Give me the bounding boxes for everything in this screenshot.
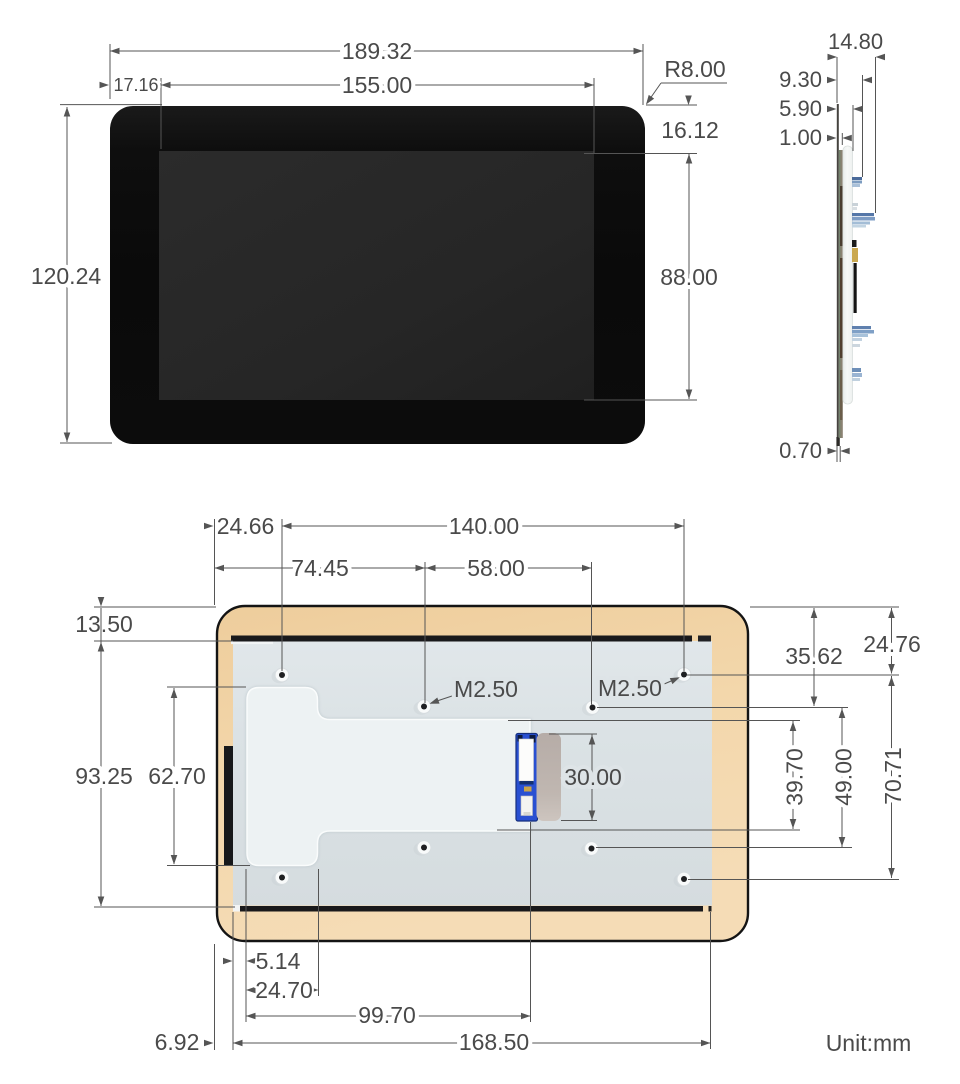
svg-text:16.12: 16.12	[661, 117, 719, 143]
svg-text:120.24: 120.24	[31, 263, 102, 289]
svg-text:35.62: 35.62	[785, 643, 843, 669]
svg-text:155.00: 155.00	[342, 72, 412, 98]
svg-text:Unit:mm: Unit:mm	[826, 1030, 912, 1056]
svg-text:189.32: 189.32	[342, 38, 412, 64]
svg-text:49.00: 49.00	[831, 748, 857, 806]
svg-text:0.70: 0.70	[779, 438, 822, 463]
svg-text:58.00: 58.00	[467, 555, 525, 581]
svg-text:62.70: 62.70	[148, 763, 206, 789]
svg-text:74.45: 74.45	[291, 555, 349, 581]
svg-text:5.90: 5.90	[779, 96, 822, 121]
svg-text:14.80: 14.80	[828, 29, 883, 54]
svg-text:99.70: 99.70	[358, 1002, 416, 1028]
svg-text:140.00: 140.00	[449, 513, 519, 539]
svg-text:30.00: 30.00	[564, 764, 622, 790]
svg-text:5.14: 5.14	[256, 948, 301, 974]
svg-text:9.30: 9.30	[779, 67, 822, 92]
svg-text:R8.00: R8.00	[664, 56, 725, 82]
svg-text:93.25: 93.25	[75, 763, 133, 789]
svg-text:17.16: 17.16	[113, 75, 158, 95]
svg-text:M2.50: M2.50	[598, 675, 662, 701]
svg-text:168.50: 168.50	[459, 1029, 529, 1055]
svg-text:13.50: 13.50	[75, 611, 133, 637]
svg-text:70.71: 70.71	[880, 747, 906, 805]
svg-text:1.00: 1.00	[779, 125, 822, 150]
svg-text:6.92: 6.92	[155, 1029, 200, 1055]
svg-text:24.66: 24.66	[217, 513, 275, 539]
svg-text:24.76: 24.76	[863, 631, 921, 657]
svg-text:39.70: 39.70	[782, 748, 808, 806]
svg-text:24.70: 24.70	[255, 977, 313, 1003]
svg-text:88.00: 88.00	[660, 264, 718, 290]
svg-text:M2.50: M2.50	[454, 676, 518, 702]
